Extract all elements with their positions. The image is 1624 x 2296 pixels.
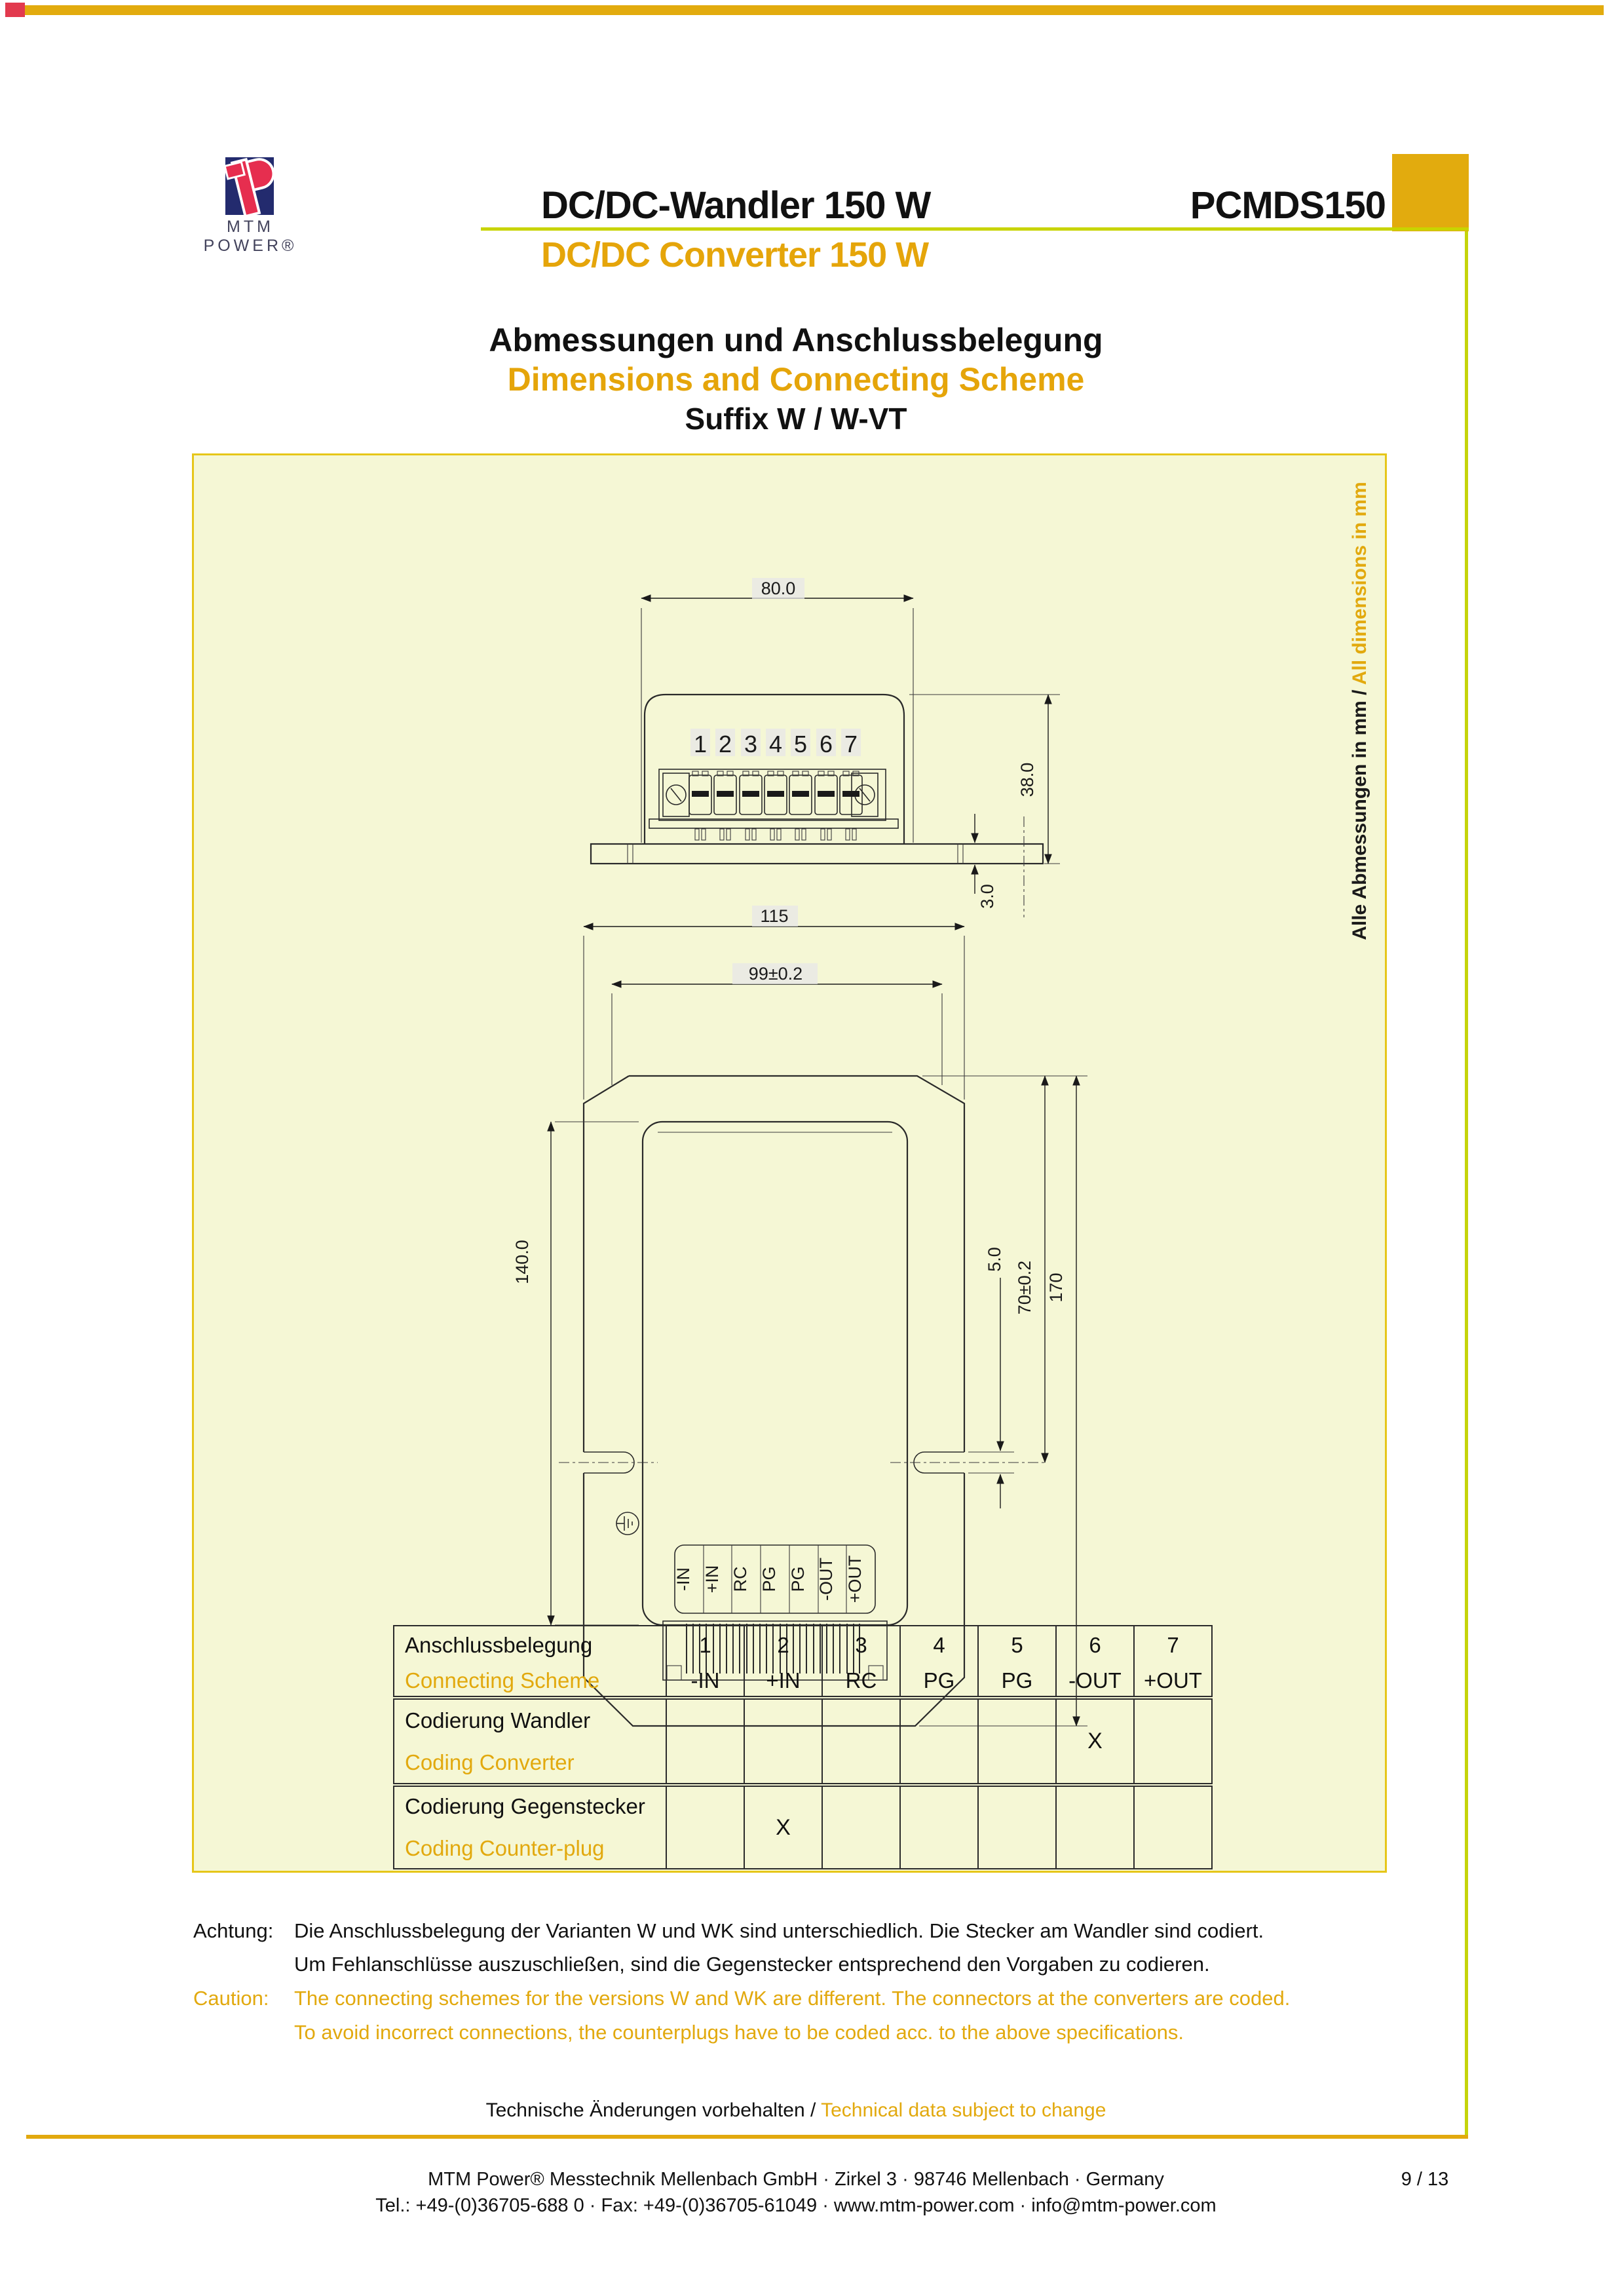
pin-number: 1	[694, 731, 707, 757]
pin-col-name: RC	[823, 1668, 899, 1693]
table-row-scheme: Anschlussbelegung Connecting Scheme 1-IN…	[394, 1626, 1212, 1698]
section-heading-en: Dimensions and Connecting Scheme	[0, 360, 1592, 398]
pin-number: 6	[820, 731, 833, 757]
pin-col-name: -IN	[667, 1668, 744, 1693]
coding-counterplug-x: X	[745, 1815, 821, 1841]
pin-col-number: 2	[745, 1633, 821, 1658]
change-note: Technische Änderungen vorbehalten / Tech…	[0, 2099, 1592, 2122]
coding-counterplug-de: Codierung Gegenstecker	[405, 1794, 666, 1819]
section-heading-de: Abmessungen und Anschlussbelegung	[0, 321, 1592, 359]
dim-99-label: 99±0.2	[749, 964, 803, 984]
footer-contact: Tel.: +49-(0)36705-688 0 · Fax: +49-(0)3…	[0, 2195, 1592, 2217]
change-note-en: Technical data subject to change	[821, 2099, 1106, 2121]
pin-label: +IN	[702, 1565, 722, 1594]
pin-label: PG	[759, 1566, 779, 1592]
pin-col-number: 6	[1057, 1633, 1133, 1658]
scheme-label-en: Connecting Scheme	[405, 1668, 666, 1693]
pin-number: 2	[719, 731, 732, 757]
model-gold-block	[1392, 154, 1469, 231]
scheme-label-de: Anschlussbelegung	[405, 1633, 666, 1658]
plan-view: 115 99±0.2 -IN +IN RC PG PG -OUT +OUT	[512, 906, 1087, 1726]
pin-col-name: +OUT	[1135, 1668, 1211, 1693]
header-underline	[481, 227, 1469, 231]
pin-col-name: -OUT	[1057, 1668, 1133, 1693]
coding-counterplug-en: Coding Counter-plug	[405, 1836, 666, 1861]
product-model: PCMDS150	[1048, 183, 1386, 227]
connecting-scheme-table: Anschlussbelegung Connecting Scheme 1-IN…	[393, 1625, 1213, 1869]
pin-col-name: PG	[979, 1668, 1055, 1693]
dim-80-label: 80.0	[761, 579, 796, 598]
coding-converter-en: Coding Converter	[405, 1750, 666, 1775]
change-note-de: Technische Änderungen vorbehalten /	[486, 2099, 821, 2121]
terminal-cells	[689, 771, 862, 840]
pin-label: +OUT	[845, 1556, 865, 1603]
coding-converter-x: X	[1057, 1729, 1133, 1754]
case-body	[643, 1122, 907, 1625]
achtung-label: Achtung:	[193, 1919, 273, 1943]
footer-company: MTM Power® Messtechnik Mellenbach GmbH ·…	[0, 2169, 1592, 2191]
table-row-coding-counterplug: Codierung Gegenstecker Coding Counter-pl…	[394, 1785, 1212, 1869]
units-note-en: All dimensions in mm	[1349, 482, 1370, 685]
earth-symbol	[616, 1512, 639, 1535]
dim-38-label: 38.0	[1017, 763, 1037, 797]
table-row-coding-converter: Codierung Wandler Coding Converter X	[394, 1698, 1212, 1785]
dim-115-label: 115	[760, 906, 788, 926]
dim-5-label: 5.0	[985, 1247, 1004, 1272]
page-title-de: DC/DC-Wandler 150 W	[541, 183, 930, 227]
pin-number: 5	[794, 731, 807, 757]
pin-label: -OUT	[816, 1558, 836, 1601]
bottom-frame-line	[26, 2135, 1468, 2139]
top-left-red-accent	[5, 3, 25, 17]
pin-col-number: 4	[901, 1633, 977, 1658]
pin-col-number: 5	[979, 1633, 1055, 1658]
dim-70-label: 70±0.2	[1015, 1261, 1034, 1314]
units-note: Alle Abmessungen in mm / All dimensions …	[1349, 482, 1370, 940]
right-frame-line	[1465, 229, 1468, 2139]
page-number: 9 / 13	[1376, 2169, 1474, 2191]
brand-wordmark: MTM POWER®	[177, 218, 324, 256]
base-plate	[591, 844, 1043, 864]
front-view: 80.0 1 2 3 4 5 6 7	[591, 578, 1060, 917]
pin-label: RC	[730, 1567, 750, 1592]
dim-3-label: 3.0	[977, 884, 997, 909]
pin-label: -IN	[673, 1567, 693, 1591]
pin-number: 3	[744, 731, 757, 757]
pin-col-number: 7	[1135, 1633, 1211, 1658]
pin-col-name: PG	[901, 1668, 977, 1693]
caution-label: Caution:	[193, 1987, 269, 2010]
pin-col-number: 1	[667, 1633, 744, 1658]
pin-number: 7	[844, 731, 858, 757]
pin-col-number: 3	[823, 1633, 899, 1658]
dim-140-label: 140.0	[512, 1240, 532, 1284]
pin-label: PG	[788, 1566, 808, 1592]
units-note-de: Alle Abmessungen in mm /	[1349, 685, 1370, 940]
pin-col-name: +IN	[745, 1668, 821, 1693]
section-suffix: Suffix W / W-VT	[0, 401, 1592, 436]
dim-170-label: 170	[1046, 1272, 1066, 1302]
top-gold-bar	[25, 5, 1604, 15]
coding-converter-de: Codierung Wandler	[405, 1708, 666, 1733]
pin-number: 4	[769, 731, 782, 757]
mtm-logo	[221, 156, 276, 219]
page-title-en: DC/DC Converter 150 W	[541, 235, 928, 275]
